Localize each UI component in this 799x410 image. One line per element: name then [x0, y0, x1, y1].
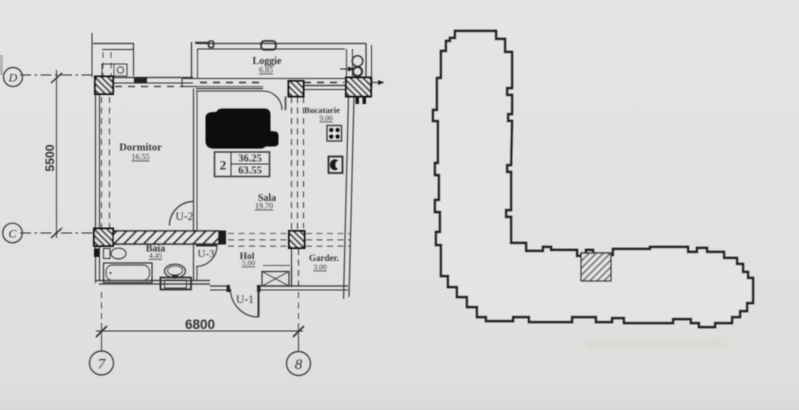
svg-text:16.55: 16.55 — [132, 153, 150, 162]
svg-text:19.70: 19.70 — [255, 202, 273, 211]
svg-text:U-1: U-1 — [236, 294, 254, 306]
svg-text:5.00: 5.00 — [242, 259, 255, 268]
svg-text:5500: 5500 — [43, 144, 57, 171]
svg-text:8: 8 — [295, 357, 303, 373]
svg-text:36.25: 36.25 — [238, 154, 262, 165]
svg-text:6.85: 6.85 — [259, 66, 273, 75]
svg-text:2: 2 — [220, 158, 227, 173]
svg-text:C: C — [8, 227, 17, 241]
svg-text:9.00: 9.00 — [319, 114, 332, 123]
svg-text:Garder.: Garder. — [309, 253, 339, 263]
svg-text:6800: 6800 — [185, 317, 215, 332]
svg-text:U-2: U-2 — [176, 211, 194, 223]
svg-text:63.55: 63.55 — [238, 166, 262, 177]
svg-text:3.00: 3.00 — [313, 263, 326, 272]
svg-text:4.45: 4.45 — [149, 251, 162, 260]
svg-text:D: D — [8, 71, 18, 85]
svg-text:U-3: U-3 — [197, 248, 215, 260]
